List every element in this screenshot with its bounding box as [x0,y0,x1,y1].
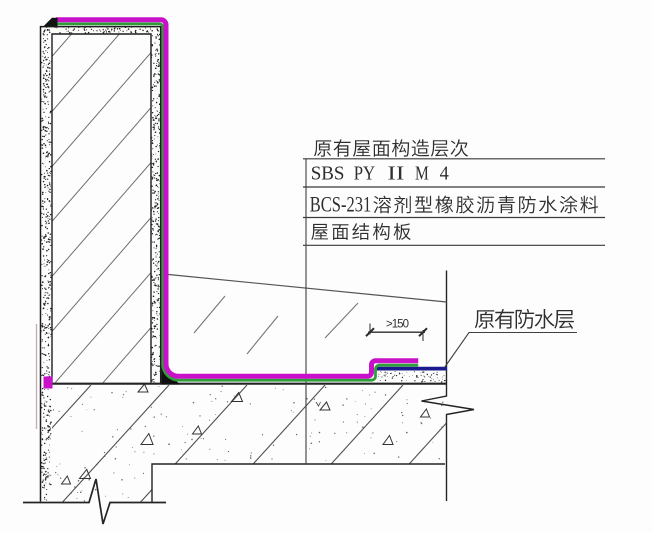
svg-text:PY: PY [354,163,376,185]
svg-text:BCS-231: BCS-231 [310,192,371,217]
svg-text:M: M [415,163,429,185]
svg-text:4: 4 [440,163,449,185]
svg-text:>150: >150 [386,319,409,331]
svg-text:SBS: SBS [311,163,345,185]
svg-text:II: II [387,163,404,185]
